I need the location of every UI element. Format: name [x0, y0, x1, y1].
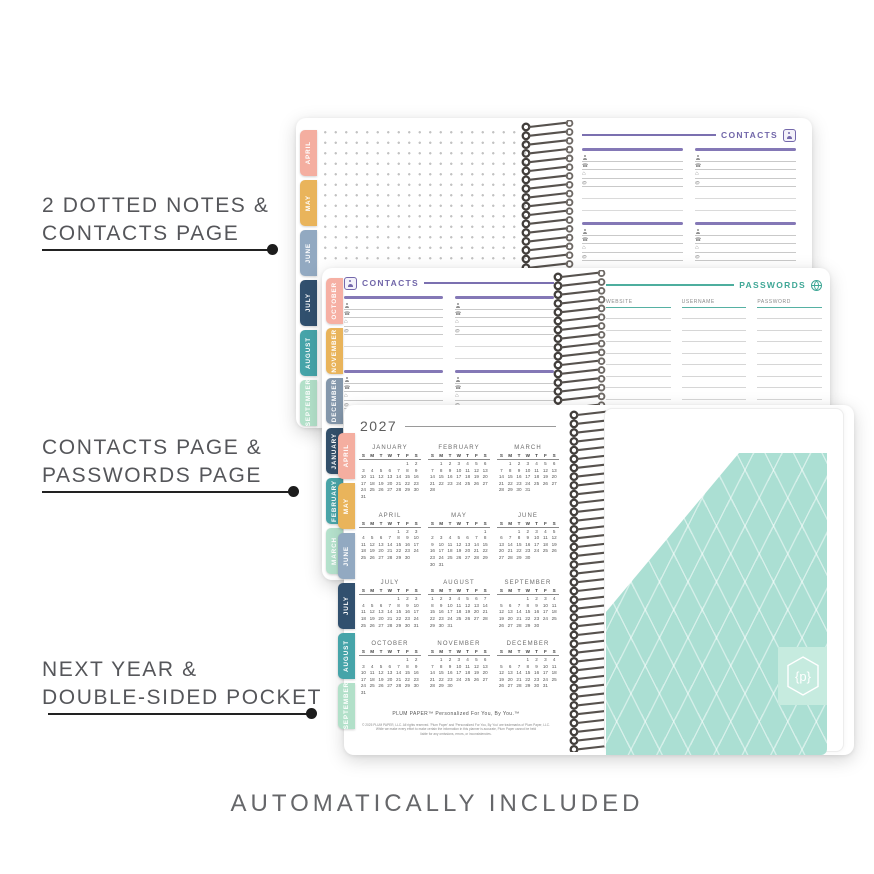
password-line	[682, 365, 747, 377]
legal-text: © 2025 PLUM PAPER, LLC. All rights reser…	[354, 723, 558, 736]
calendar-month-january: JANUARYSMTWTFS12345678910111213141516171…	[359, 445, 421, 501]
date-row: 15161718192021	[428, 609, 490, 616]
calendar-month-october: OCTOBERSMTWTFS12345678910111213141516171…	[359, 641, 421, 697]
contact-blocks	[582, 148, 796, 285]
date-row: 17181920212223	[359, 481, 421, 488]
month-tab-august: AUGUST	[338, 633, 355, 679]
password-column-header: PASSWORD	[757, 299, 822, 308]
month-tab-september: SEPTEMBER	[300, 380, 317, 426]
date-row: 19202122232425	[497, 677, 559, 684]
password-line	[757, 331, 822, 343]
month-tab-may: MAY	[300, 180, 317, 226]
date-row: 3456789	[359, 664, 421, 671]
password-line	[757, 319, 822, 331]
password-line	[682, 377, 747, 389]
contact-field-row	[582, 179, 683, 188]
password-line	[757, 354, 822, 366]
month-name: NOVEMBER	[428, 641, 490, 647]
date-row: 12345	[497, 529, 559, 536]
contacts-header: CONTACTS	[344, 276, 554, 290]
globe-icon	[811, 280, 822, 291]
plum-paper-logo: {p}	[778, 647, 827, 705]
date-row: 31	[359, 494, 421, 501]
password-line	[606, 388, 671, 400]
contact-note-line	[344, 347, 443, 359]
address-book-icon	[783, 129, 796, 142]
date-row: 13141516171819	[497, 542, 559, 549]
hexagon-logo-icon: {p}	[785, 655, 821, 697]
contact-field-row	[695, 227, 796, 236]
date-row: 123456	[497, 461, 559, 468]
date-row: 123	[359, 529, 421, 536]
year-title: 2027	[360, 418, 397, 434]
month-name: JULY	[359, 580, 421, 586]
password-line	[682, 308, 747, 320]
contact-field-row	[695, 244, 796, 253]
password-line	[606, 377, 671, 389]
date-row: 12131415161718	[497, 609, 559, 616]
password-line	[682, 331, 747, 343]
brand-line: PLUM PAPER™ Personalized For You, By You…	[344, 711, 568, 717]
contact-field-row	[344, 301, 443, 310]
month-tab-column-top: APRILMAYJUNEJULYAUGUSTSEPTEMBER	[300, 130, 317, 430]
email-icon	[582, 181, 588, 187]
date-row: 9101112131415	[428, 542, 490, 549]
home-icon	[344, 394, 350, 400]
password-line	[757, 308, 822, 320]
phone-icon	[455, 312, 461, 318]
date-row: 23242526272829	[428, 555, 490, 562]
contact-field-row	[695, 170, 796, 179]
home-icon	[582, 172, 588, 178]
month-tab-july: JULY	[338, 583, 355, 629]
month-name: APRIL	[359, 513, 421, 519]
date-row: 45678910	[359, 535, 421, 542]
date-row: 1234	[497, 596, 559, 603]
contact-note-line	[455, 347, 554, 359]
date-row: 17181920212223	[359, 677, 421, 684]
calendar-month-may: MAYSMTWTFS123456789101112131415161718192…	[428, 513, 490, 569]
calendar-month-september: SEPTEMBERSMTWTFS123456789101112131415161…	[497, 580, 559, 629]
month-tab-october: OCTOBER	[326, 278, 343, 324]
month-name: JUNE	[497, 513, 559, 519]
year-calendar: JANUARYSMTWTFS12345678910111213141516171…	[359, 445, 559, 697]
contact-field-row	[695, 236, 796, 245]
callout-next-year-pocket: NEXT YEAR & DOUBLE-SIDED POCKET	[42, 656, 322, 712]
date-row: 28	[428, 487, 490, 494]
contact-field-row	[582, 153, 683, 162]
person-icon	[582, 155, 588, 161]
contact-field-row	[695, 153, 796, 162]
contact-field-row	[455, 318, 554, 327]
contact-field-row	[344, 384, 443, 393]
email-icon	[582, 255, 588, 261]
date-row: 123456	[428, 461, 490, 468]
contact-field-row	[695, 179, 796, 188]
callout-text-line: NEXT YEAR &	[42, 656, 322, 684]
person-icon	[582, 229, 588, 235]
date-row: 18192021222324	[359, 548, 421, 555]
contact-field-row	[344, 375, 443, 384]
weekday-header-row: SMTWTFS	[359, 588, 421, 595]
contact-block-bar	[695, 148, 796, 151]
month-name: AUGUST	[428, 580, 490, 586]
home-icon	[455, 320, 461, 326]
weekday-header-row: SMTWTFS	[428, 521, 490, 528]
phone-icon	[582, 238, 588, 244]
date-row: 24252627282930	[359, 683, 421, 690]
calendar-month-november: NOVEMBERSMTWTFS1234567891011121314151617…	[428, 641, 490, 697]
date-row: 18192021222324	[359, 616, 421, 623]
date-row: 2345678	[428, 535, 490, 542]
weekday-header-row: SMTWTFS	[428, 588, 490, 595]
calendar-month-june: JUNESMTWTFS12345678910111213141516171819…	[497, 513, 559, 569]
month-tab-june: JUNE	[300, 230, 317, 276]
callout-contacts-passwords: CONTACTS PAGE & PASSWORDS PAGE	[42, 434, 262, 490]
date-row: 22232425262728	[428, 616, 490, 623]
date-row: 1	[428, 529, 490, 536]
weekday-header-row: SMTWTFS	[428, 649, 490, 656]
pointer-dot	[306, 708, 317, 719]
date-row: 252627282930	[359, 555, 421, 562]
date-row: 10111213141516	[359, 670, 421, 677]
phone-icon	[455, 386, 461, 392]
date-row: 25262728293031	[359, 623, 421, 630]
date-row: 21222324252627	[428, 481, 490, 488]
password-line	[606, 342, 671, 354]
date-row: 2627282930	[497, 623, 559, 630]
contact-block	[695, 148, 796, 211]
contact-note-line	[695, 199, 796, 211]
month-tab-august: AUGUST	[300, 330, 317, 376]
month-name: MARCH	[497, 445, 559, 451]
month-tab-april: APRIL	[338, 433, 355, 479]
password-line	[757, 342, 822, 354]
contact-note-line	[582, 199, 683, 211]
email-icon	[695, 255, 701, 261]
header-rule	[582, 134, 716, 136]
date-row: 567891011	[497, 603, 559, 610]
bottom-spread-notebook: APRILMAYJUNEJULYAUGUSTSEPTEMBER 2027 JAN…	[344, 405, 854, 755]
email-icon	[695, 181, 701, 187]
contact-note-line	[582, 187, 683, 199]
password-line	[606, 365, 671, 377]
person-icon	[455, 303, 461, 309]
phone-icon	[344, 386, 350, 392]
password-column-header: WEBSITE	[606, 299, 671, 308]
contact-block-bar	[344, 370, 443, 373]
password-line	[682, 342, 747, 354]
calendar-month-august: AUGUSTSMTWTFS123456789101112131415161718…	[428, 580, 490, 629]
contact-block-bar	[344, 296, 443, 299]
dotted-notes-page	[318, 125, 528, 265]
weekday-header-row: SMTWTFS	[428, 453, 490, 460]
callout-text-line: DOUBLE-SIDED POCKET	[42, 684, 322, 712]
month-tab-december: DECEMBER	[326, 378, 343, 424]
contacts-page-top: CONTACTS	[582, 128, 796, 285]
month-name: FEBRUARY	[428, 445, 490, 451]
callout-pointer-line	[42, 249, 274, 251]
contact-block-bar	[695, 222, 796, 225]
weekday-header-row: SMTWTFS	[497, 521, 559, 528]
calendar-month-march: MARCHSMTWTFS1234567891011121314151617181…	[497, 445, 559, 501]
date-row: 78910111213	[497, 468, 559, 475]
contacts-title: CONTACTS	[721, 130, 778, 140]
date-row: 31	[359, 690, 421, 697]
person-icon	[695, 229, 701, 235]
home-icon	[582, 246, 588, 252]
date-row: 891011121314	[428, 603, 490, 610]
phone-icon	[582, 164, 588, 170]
callout-text-line: CONTACTS PAGE	[42, 220, 269, 248]
contact-block-bar	[582, 148, 683, 151]
date-row: 293031	[428, 623, 490, 630]
date-row: 28293031	[497, 487, 559, 494]
password-line	[606, 331, 671, 343]
calendar-month-april: APRILSMTWTFS1234567891011121314151617181…	[359, 513, 421, 569]
month-name: OCTOBER	[359, 641, 421, 647]
date-row: 262728293031	[497, 683, 559, 690]
month-tab-july: JULY	[300, 280, 317, 326]
person-icon	[344, 377, 350, 383]
pointer-dot	[288, 486, 299, 497]
home-icon	[695, 246, 701, 252]
month-tab-column-bottom: APRILMAYJUNEJULYAUGUSTSEPTEMBER	[338, 433, 355, 733]
date-row: 567891011	[497, 664, 559, 671]
pointer-dot	[267, 244, 278, 255]
callout-pointer-line	[42, 491, 295, 493]
contact-block-bar	[455, 370, 554, 373]
contact-field-row	[582, 244, 683, 253]
date-row: 20212223242526	[497, 548, 559, 555]
contact-field-row	[455, 384, 554, 393]
contact-block	[455, 296, 554, 359]
date-row: 6789101112	[497, 535, 559, 542]
contact-field-row	[455, 375, 554, 384]
contact-field-row	[582, 162, 683, 171]
contact-field-row	[455, 392, 554, 401]
contacts-header: CONTACTS	[582, 128, 796, 142]
password-line	[682, 354, 747, 366]
contact-field-row	[582, 170, 683, 179]
phone-icon	[695, 164, 701, 170]
contact-block-bar	[582, 222, 683, 225]
password-line	[757, 388, 822, 400]
phone-icon	[344, 312, 350, 318]
phone-icon	[695, 238, 701, 244]
date-row: 78910111213	[428, 468, 490, 475]
contact-field-row	[344, 392, 443, 401]
password-line	[682, 319, 747, 331]
month-name: SEPTEMBER	[497, 580, 559, 586]
date-row: 11121314151617	[359, 542, 421, 549]
date-row: 21222324252627	[428, 677, 490, 684]
password-line	[757, 365, 822, 377]
calendar-month-february: FEBRUARYSMTWTFS1234567891011121314151617…	[428, 445, 490, 501]
date-row: 24252627282930	[359, 487, 421, 494]
date-row: 12	[359, 657, 421, 664]
month-name: DECEMBER	[497, 641, 559, 647]
password-line	[757, 377, 822, 389]
date-row: 123	[359, 596, 421, 603]
contact-field-row	[455, 301, 554, 310]
month-tab-november: NOVEMBER	[326, 328, 343, 374]
month-tab-april: APRIL	[300, 130, 317, 176]
person-icon	[695, 155, 701, 161]
date-row: 10111213141516	[359, 474, 421, 481]
month-name: JANUARY	[359, 445, 421, 451]
address-book-icon	[344, 277, 357, 290]
date-row: 282930	[428, 683, 490, 690]
passwords-header: PASSWORDS	[606, 278, 822, 292]
calendar-month-july: JULYSMTWTFS12345678910111213141516171819…	[359, 580, 421, 629]
date-row: 123456	[428, 657, 490, 664]
weekday-header-row: SMTWTFS	[359, 649, 421, 656]
passwords-title: PASSWORDS	[739, 280, 806, 290]
date-row: 19202122232425	[497, 616, 559, 623]
date-row: 1234	[497, 657, 559, 664]
contact-note-line	[455, 335, 554, 347]
weekday-header-row: SMTWTFS	[497, 649, 559, 656]
year-header: 2027	[360, 418, 556, 434]
date-row: 27282930	[497, 555, 559, 562]
date-row: 3456789	[359, 468, 421, 475]
home-icon	[695, 172, 701, 178]
home-icon	[455, 394, 461, 400]
contact-note-line	[695, 187, 796, 199]
date-row: 78910111213	[428, 664, 490, 671]
date-row: 14151617181920	[428, 670, 490, 677]
date-row: 14151617181920	[497, 474, 559, 481]
callout-text-line: 2 DOTTED NOTES &	[42, 192, 269, 220]
date-row: 11121314151617	[359, 609, 421, 616]
callout-text-line: PASSWORDS PAGE	[42, 462, 262, 490]
weekday-header-row: SMTWTFS	[359, 453, 421, 460]
home-icon	[344, 320, 350, 326]
date-row: 45678910	[359, 603, 421, 610]
header-rule	[424, 282, 554, 284]
legal-line: liable for any omissions, errors, or inc…	[354, 732, 558, 736]
contact-field-row	[344, 327, 443, 336]
bottom-caption: AUTOMATICALLY INCLUDED	[0, 790, 874, 818]
contact-field-row	[695, 253, 796, 262]
person-icon	[344, 303, 350, 309]
password-line	[606, 319, 671, 331]
logo-text: {p}	[795, 669, 812, 684]
date-row: 12	[359, 461, 421, 468]
weekday-header-row: SMTWTFS	[497, 588, 559, 595]
contact-field-row	[582, 253, 683, 262]
weekday-header-row: SMTWTFS	[359, 521, 421, 528]
contact-field-row	[455, 327, 554, 336]
person-icon	[455, 377, 461, 383]
year-rule	[405, 426, 556, 427]
date-row: 14151617181920	[428, 474, 490, 481]
date-row: 16171819202122	[428, 548, 490, 555]
contact-block	[582, 148, 683, 211]
date-row: 21222324252627	[497, 481, 559, 488]
password-line	[682, 388, 747, 400]
password-line	[606, 354, 671, 366]
contact-field-row	[455, 310, 554, 319]
date-row: 1234567	[428, 596, 490, 603]
contact-note-line	[344, 335, 443, 347]
date-row: 3031	[428, 562, 490, 569]
email-icon	[455, 329, 461, 335]
contact-block-bar	[455, 296, 554, 299]
password-column-header: USERNAME	[682, 299, 747, 308]
contact-field-row	[695, 162, 796, 171]
header-rule	[606, 284, 734, 286]
month-tab-september: SEPTEMBER	[338, 683, 355, 729]
callout-dotted-notes: 2 DOTTED NOTES & CONTACTS PAGE	[42, 192, 269, 248]
contact-block	[344, 296, 443, 359]
month-tab-june: JUNE	[338, 533, 355, 579]
calendar-month-december: DECEMBERSMTWTFS1234567891011121314151617…	[497, 641, 559, 697]
contact-field-row	[582, 236, 683, 245]
month-name: MAY	[428, 513, 490, 519]
email-icon	[344, 329, 350, 335]
date-row: 12131415161718	[497, 670, 559, 677]
month-tab-may: MAY	[338, 483, 355, 529]
callout-pointer-line	[48, 713, 313, 715]
callout-text-line: CONTACTS PAGE &	[42, 434, 262, 462]
contact-field-row	[344, 318, 443, 327]
contact-field-row	[344, 310, 443, 319]
contact-field-row	[582, 227, 683, 236]
password-line	[606, 308, 671, 320]
contacts-title: CONTACTS	[362, 278, 419, 288]
weekday-header-row: SMTWTFS	[497, 453, 559, 460]
